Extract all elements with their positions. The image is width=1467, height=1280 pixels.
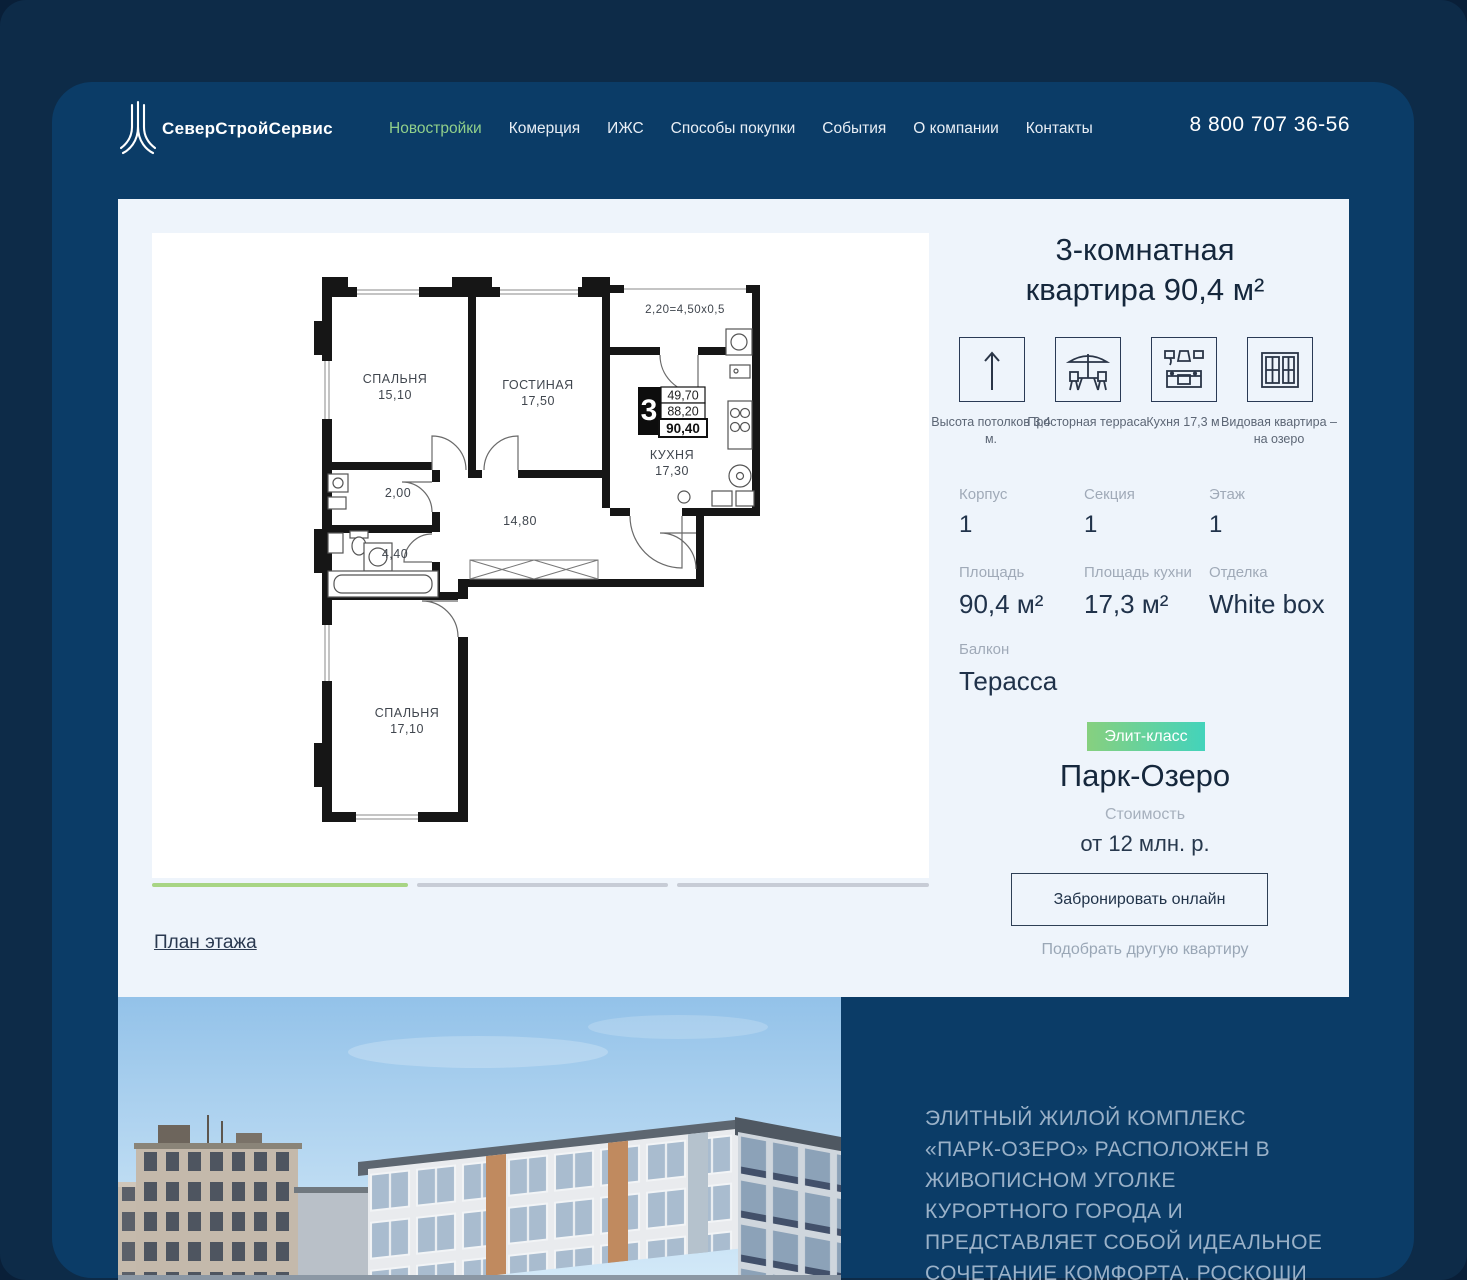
price-value: от 12 млн. р. (950, 831, 1340, 857)
window-view-icon (1258, 349, 1302, 391)
kitchen-icon (1161, 347, 1207, 393)
ceiling-height-arrow-icon (972, 348, 1012, 392)
gallery-indicator[interactable] (417, 883, 668, 887)
price-label: Стоимость (950, 806, 1340, 824)
room-area-living: 17,50 (521, 394, 555, 408)
company-logo-text[interactable]: СеверСтройСервис (162, 119, 333, 139)
feature-ceiling-height: Высота потолков 3,4 м. (959, 337, 1025, 448)
building-render-image (118, 997, 841, 1280)
feature-kitchen: Кухня 17,3 м (1151, 337, 1217, 448)
main-navigation: Новостройки Комерция ИЖС Способы покупки… (389, 120, 1093, 138)
room-area-wc: 4,40 (382, 547, 408, 561)
spec-balkon: Балкон Терасса (959, 641, 1109, 697)
page: СеверСтройСервис Новостройки Комерция ИЖ… (0, 0, 1467, 1280)
room-label-living: ГОСТИНАЯ (502, 378, 573, 392)
feature-lake-view: Видовая квартира – на озеро (1247, 337, 1313, 448)
floor-plan-link[interactable]: План этажа (154, 932, 257, 954)
book-online-button[interactable]: Забронировать онлайн (1011, 873, 1268, 926)
complex-name: Парк-Озеро (950, 758, 1340, 794)
company-logo-icon[interactable] (120, 99, 156, 157)
apartment-title-line1: 3-комнатная (950, 230, 1340, 270)
nav-item-komerciya[interactable]: Комерция (509, 120, 580, 138)
nav-item-o-kompanii[interactable]: О компании (913, 120, 999, 138)
room-label-bedroom1: СПАЛЬНЯ (363, 372, 428, 386)
feature-terrace: Просторная терраса (1055, 337, 1121, 448)
gallery-indicator-active[interactable] (152, 883, 408, 887)
terrace-dimension: 2,20=4,50x0,5 (645, 304, 725, 316)
phone-number[interactable]: 8 800 707 36-56 (1150, 113, 1350, 137)
room-area-kitchen: 17,30 (655, 464, 689, 478)
gallery-indicator[interactable] (677, 883, 929, 887)
room-area-bath: 2,00 (385, 486, 411, 500)
room-area-hall: 14,80 (503, 514, 537, 528)
room-label-bedroom2: СПАЛЬНЯ (375, 706, 440, 720)
class-badge: Элит-класс (1087, 722, 1205, 751)
nav-item-izhs[interactable]: ИЖС (607, 120, 643, 138)
apartment-title-line2: квартира 90,4 м² (950, 270, 1340, 310)
stamp-apartment-area: 88,20 (667, 405, 698, 419)
spec-etazh: Этаж 1 (1209, 486, 1359, 539)
feature-list: Высота потолков 3,4 м. Просторная террас… (959, 337, 1313, 448)
nav-item-novostroyki[interactable]: Новостройки (389, 120, 482, 138)
spec-otdelka: Отделка White box (1209, 564, 1359, 620)
nav-item-sobytiya[interactable]: События (822, 120, 886, 138)
room-area-bedroom1: 15,10 (378, 388, 412, 402)
floor-plan-image: 3 49,70 88,20 90,40 СПАЛЬНЯ 15,10 ГОСТИН… (152, 233, 929, 878)
apartment-title: 3-комнатная квартира 90,4 м² (950, 230, 1340, 309)
choose-other-apartment-link[interactable]: Подобрать другую квартиру (950, 941, 1340, 959)
nav-item-sposoby-pokupki[interactable]: Способы покупки (671, 120, 796, 138)
terrace-icon (1065, 348, 1111, 392)
stamp-rooms-count: 3 (641, 394, 658, 427)
room-area-bedroom2: 17,10 (390, 722, 424, 736)
stamp-total-area: 90,40 (666, 421, 700, 436)
nav-item-kontakty[interactable]: Контакты (1026, 120, 1093, 138)
stamp-living-area: 49,70 (667, 389, 698, 403)
room-label-kitchen: КУХНЯ (650, 448, 694, 462)
complex-description: ЭЛИТНЫЙ ЖИЛОЙ КОМПЛЕКС «ПАРК-ОЗЕРО» РАСП… (925, 1103, 1325, 1280)
